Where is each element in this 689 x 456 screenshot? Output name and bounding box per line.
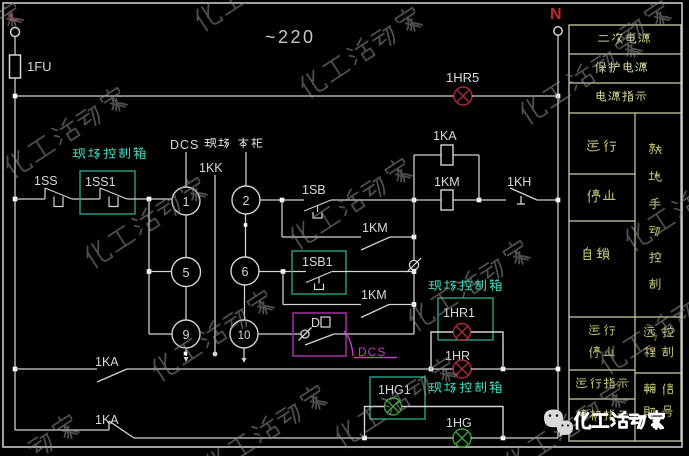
svg-text:1HG: 1HG	[446, 416, 472, 430]
svg-text:1KA: 1KA	[433, 129, 457, 143]
svg-text:1SS: 1SS	[34, 174, 58, 188]
svg-text:1FU: 1FU	[27, 59, 52, 74]
svg-text:6: 6	[242, 265, 249, 279]
svg-text:2: 2	[243, 194, 250, 208]
svg-text:10: 10	[238, 330, 251, 342]
svg-text:DCS: DCS	[170, 138, 199, 152]
svg-text:1KA: 1KA	[95, 355, 119, 369]
svg-text:1SB: 1SB	[302, 183, 326, 197]
svg-text:1KH: 1KH	[507, 175, 531, 189]
svg-text:D: D	[311, 316, 320, 330]
svg-text:1KK: 1KK	[199, 161, 223, 175]
svg-text:1KM: 1KM	[434, 175, 460, 189]
svg-text:N: N	[550, 6, 562, 23]
svg-text:1HR5: 1HR5	[446, 70, 479, 85]
svg-text:1KM: 1KM	[362, 221, 388, 235]
svg-text:5: 5	[183, 266, 190, 280]
svg-text:~220: ~220	[265, 27, 316, 47]
svg-text:1SB1: 1SB1	[302, 255, 333, 269]
svg-text:1SS1: 1SS1	[85, 175, 116, 189]
svg-text:1: 1	[183, 195, 190, 209]
svg-text:1KM: 1KM	[361, 288, 387, 302]
